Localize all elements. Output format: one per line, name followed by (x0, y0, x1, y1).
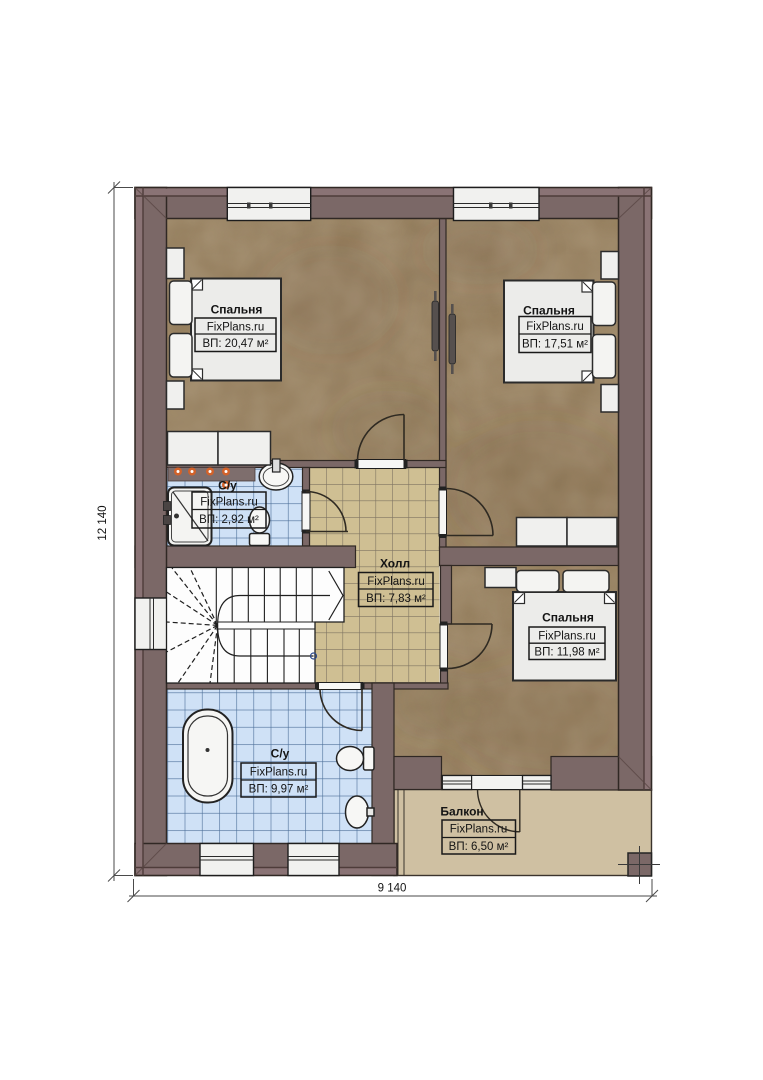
svg-text:ВП: 7,83 м²: ВП: 7,83 м² (366, 593, 426, 605)
svg-text:FixPlans.ru: FixPlans.ru (250, 767, 308, 779)
svg-text:FixPlans.ru: FixPlans.ru (200, 497, 258, 509)
svg-text:ВП: 9,97 м²: ВП: 9,97 м² (249, 784, 309, 796)
svg-text:С/у: С/у (271, 747, 290, 761)
svg-text:12 140: 12 140 (97, 505, 109, 540)
svg-text:Балкон: Балкон (440, 805, 483, 819)
svg-text:FixPlans.ru: FixPlans.ru (526, 321, 584, 333)
svg-text:ВП: 11,98 м²: ВП: 11,98 м² (534, 647, 599, 659)
svg-text:FixPlans.ru: FixPlans.ru (367, 576, 425, 588)
svg-text:ВП: 17,51 м²: ВП: 17,51 м² (522, 339, 588, 351)
svg-text:Спальня: Спальня (211, 303, 263, 317)
svg-text:FixPlans.ru: FixPlans.ru (450, 824, 508, 836)
svg-text:С/у: С/у (218, 479, 237, 493)
svg-text:9 140: 9 140 (378, 883, 407, 895)
svg-text:Холл: Холл (380, 557, 410, 571)
svg-text:FixPlans.ru: FixPlans.ru (207, 322, 265, 334)
svg-text:ВП: 6,50 м²: ВП: 6,50 м² (449, 841, 509, 853)
svg-text:ВП: 2,92 м²: ВП: 2,92 м² (199, 514, 259, 526)
svg-text:ВП: 20,47 м²: ВП: 20,47 м² (202, 338, 268, 350)
svg-text:Спальня: Спальня (523, 304, 575, 318)
svg-text:FixPlans.ru: FixPlans.ru (538, 631, 596, 643)
svg-text:Спальня: Спальня (542, 611, 594, 625)
